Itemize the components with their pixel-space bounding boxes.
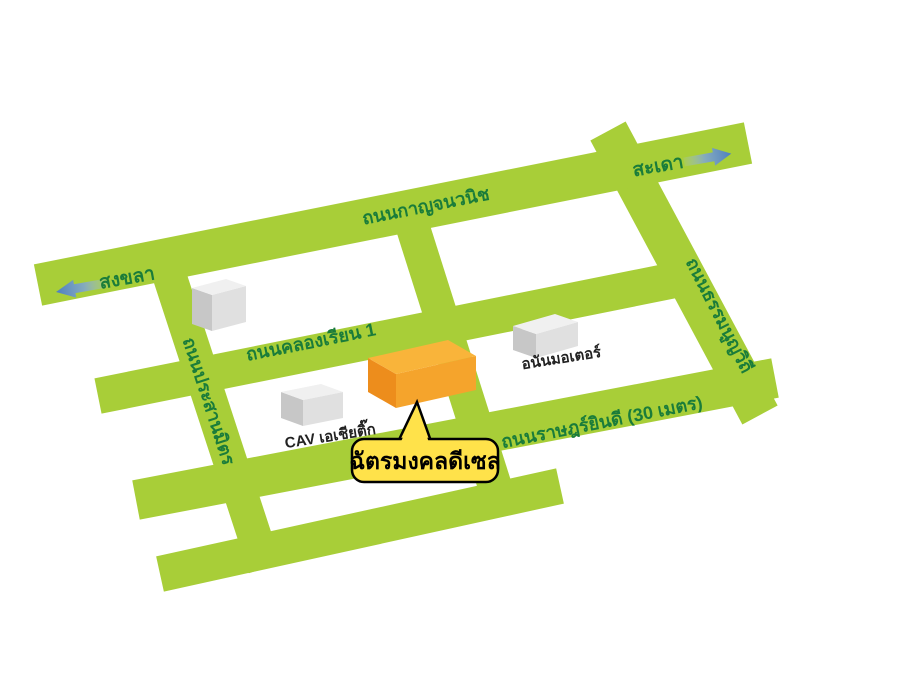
building-unnamed: [192, 279, 246, 331]
building-unnamed-side: [192, 288, 212, 331]
map-canvas: ถนนกาญจนวนิช ถนนคลองเรียน 1 ถนนราษฎร์ยิน…: [0, 0, 900, 675]
callout-label: ฉัตรมงคลดีเซล: [349, 448, 500, 474]
sketch-map: ถนนกาญจนวนิช ถนนคลองเรียน 1 ถนนราษฎร์ยิน…: [0, 0, 900, 675]
building-anan-motor: อนันมอเตอร์: [513, 314, 603, 373]
